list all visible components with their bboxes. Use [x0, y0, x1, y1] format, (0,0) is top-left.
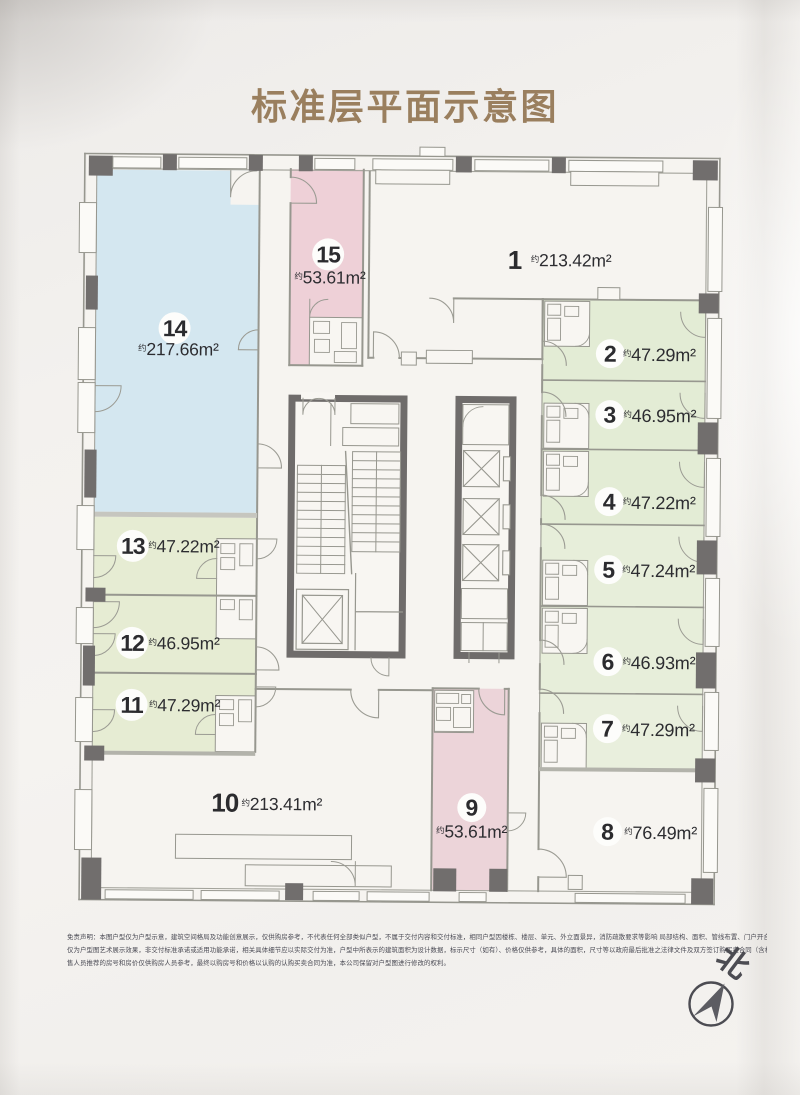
svg-text:约53.61m²: 约53.61m² [436, 821, 508, 842]
svg-text:7: 7 [601, 716, 614, 742]
svg-text:北: 北 [710, 939, 756, 986]
svg-text:1: 1 [508, 245, 523, 275]
svg-text:5: 5 [602, 557, 615, 583]
svg-text:3: 3 [603, 402, 616, 428]
svg-text:约47.29m²: 约47.29m² [149, 695, 221, 716]
svg-text:约213.41m²: 约213.41m² [241, 794, 322, 815]
svg-text:6: 6 [601, 649, 614, 675]
svg-text:约76.49m²: 约76.49m² [624, 823, 697, 844]
svg-text:约217.66m²: 约217.66m² [138, 339, 219, 360]
svg-text:约47.22m²: 约47.22m² [148, 536, 220, 557]
svg-text:9: 9 [465, 795, 478, 821]
svg-text:约46.95m²: 约46.95m² [148, 633, 220, 654]
svg-text:2: 2 [604, 341, 617, 367]
svg-text:13: 13 [121, 533, 145, 559]
svg-text:约46.95m²: 约46.95m² [623, 406, 696, 427]
svg-text:4: 4 [603, 489, 616, 515]
svg-text:8: 8 [601, 819, 614, 845]
svg-text:11: 11 [120, 692, 144, 718]
svg-text:约46.93m²: 约46.93m² [622, 653, 695, 674]
svg-text:12: 12 [120, 630, 144, 656]
svg-text:约47.29m²: 约47.29m² [622, 720, 695, 741]
svg-text:10: 10 [211, 788, 239, 818]
svg-text:约213.42m²: 约213.42m² [531, 250, 612, 271]
svg-text:约47.29m²: 约47.29m² [623, 345, 696, 366]
svg-text:14: 14 [163, 315, 188, 341]
svg-text:约47.22m²: 约47.22m² [623, 493, 696, 514]
svg-text:15: 15 [316, 241, 341, 267]
svg-text:约53.61m²: 约53.61m² [294, 267, 366, 288]
svg-text:约47.24m²: 约47.24m² [622, 561, 695, 582]
